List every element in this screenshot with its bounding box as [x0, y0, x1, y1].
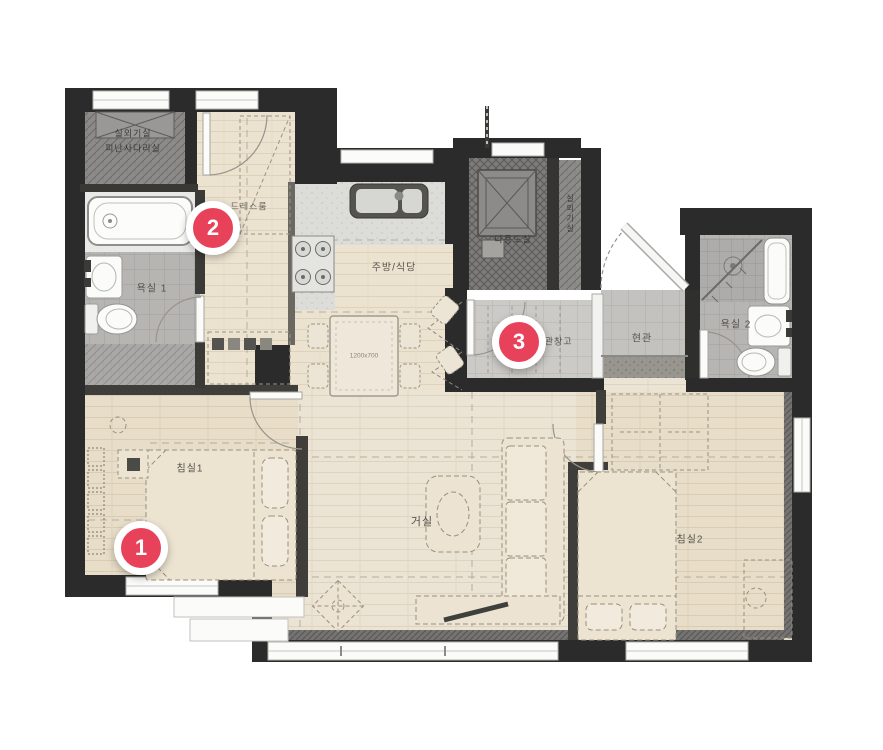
room-label-dressroom: 드레스룸 — [230, 200, 267, 213]
sink-2 — [748, 306, 792, 346]
front-door — [601, 226, 686, 288]
marker-1-number: 1 — [135, 537, 147, 559]
room-label-bedroom2: 침실2 — [677, 531, 704, 546]
room-label-ac-side: 실외기실 — [565, 194, 576, 234]
bed-2 — [578, 472, 676, 640]
room-label-outdoor-unit-line1: 실외기실 — [114, 127, 151, 140]
floorplan-screenshot: 실외기실 피난사다리실 드레스룸 욕실 1 주방/식당 다용도실 실외기실 현관… — [0, 0, 883, 750]
sink-1 — [84, 256, 122, 298]
tv-bench — [416, 596, 560, 624]
bathtub-1 — [88, 197, 192, 245]
hotspot-marker-3[interactable]: 3 — [492, 315, 546, 369]
room-label-outdoor-unit-line2: 피난사다리실 — [105, 142, 161, 155]
kitchen-sink — [350, 184, 428, 218]
floor-plan-canvas — [0, 0, 883, 750]
storage-entry-door — [592, 294, 603, 378]
room-label-living: 거실 — [411, 513, 433, 529]
room-label-bathroom1: 욕실 1 — [137, 280, 168, 295]
marker-2-number: 2 — [207, 217, 219, 239]
dining-table-size-label: 1200x700 — [350, 353, 379, 360]
room-label-utility: 다용도실 — [494, 233, 531, 246]
hotspot-marker-1[interactable]: 1 — [114, 521, 168, 575]
hotspot-marker-2[interactable]: 2 — [186, 201, 240, 255]
toilet-1 — [85, 304, 137, 334]
bed-1 — [146, 450, 296, 580]
tub-2 — [764, 238, 790, 304]
sofa — [502, 438, 564, 622]
room-label-entry: 현관 — [632, 330, 652, 345]
marker-3-number: 3 — [513, 331, 525, 353]
room-label-bathroom2: 욕실 2 — [721, 316, 752, 331]
room-label-kitchen: 주방/식당 — [372, 259, 417, 274]
stove — [292, 236, 334, 292]
room-label-bedroom1: 침실1 — [177, 460, 204, 475]
coffee-table — [426, 476, 480, 552]
toilet-2 — [737, 348, 791, 376]
